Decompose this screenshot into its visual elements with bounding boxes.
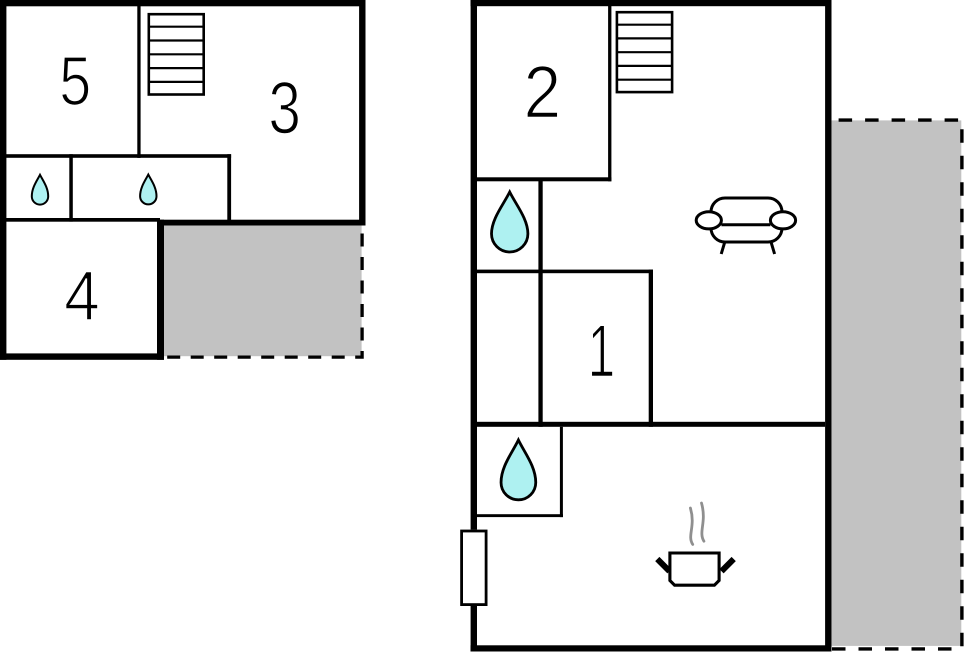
svg-text:5: 5	[59, 42, 91, 121]
svg-text:3: 3	[268, 68, 301, 150]
svg-text:1: 1	[588, 310, 615, 393]
svg-text:4: 4	[64, 257, 100, 335]
svg-text:2: 2	[523, 51, 561, 135]
